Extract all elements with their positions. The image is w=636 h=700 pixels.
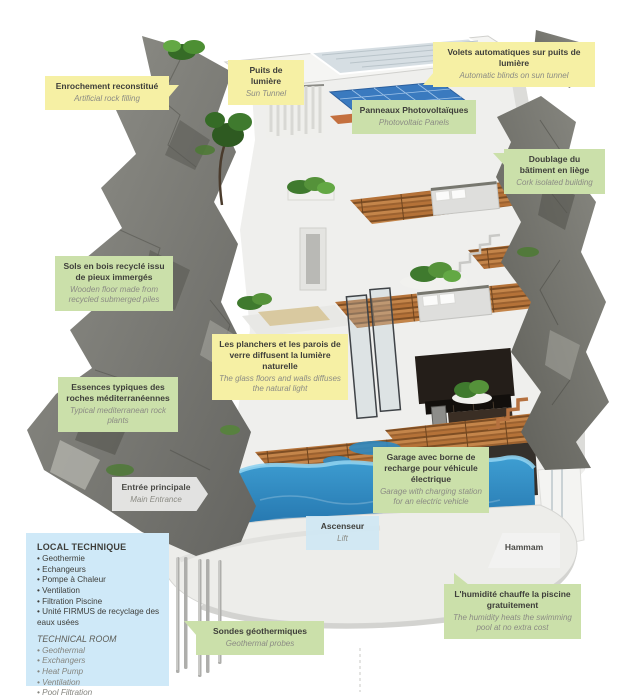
label-en-text: Lift [312, 534, 373, 544]
label-geothermal-probes: Sondes géothermiques Geothermal probes [196, 621, 324, 655]
list-item: Exchangers [37, 656, 164, 667]
label-lift: Ascenseur Lift [306, 516, 379, 550]
label-en-text: Photovoltaic Panels [358, 118, 470, 128]
label-photovoltaic-panels: Panneaux Photovoltaïques Photovoltaic Pa… [352, 100, 476, 134]
label-en-text: Automatic blinds on sun tunnel [439, 71, 589, 81]
list-item: Geothermal [37, 646, 164, 657]
label-en-text: The humidity heats the swimming pool at … [450, 613, 575, 633]
technical-room-title-fr: LOCAL TECHNIQUE [37, 542, 164, 552]
label-fr-text: L'humidité chauffe la piscine gratuiteme… [450, 589, 575, 611]
list-item: Unité FIRMUS de recyclage des eaux usées [37, 607, 164, 628]
label-mediterranean-rock-plants: Essences typiques des roches méditerrané… [58, 377, 178, 432]
label-en-text: Typical mediterranean rock plants [64, 406, 172, 426]
label-fr-text: Sols en bois recyclé issu de pieux immer… [61, 261, 167, 283]
label-fr-text: Ascenseur [312, 521, 373, 532]
list-item: Filtration Piscine [37, 597, 164, 608]
label-en-text: Geothermal probes [202, 639, 318, 649]
label-cork-isolated-building: Doublage du bâtiment en liège Cork isola… [504, 149, 605, 194]
technical-room-title-en: TECHNICAL ROOM [37, 634, 164, 644]
label-fr-text: Essences typiques des roches méditerrané… [64, 382, 172, 404]
technical-room-list-fr: Geothermie Echangeurs Pompe à Chaleur Ve… [37, 554, 164, 629]
list-item: Pool Filtration [37, 688, 164, 699]
technical-room-panel: LOCAL TECHNIQUE Geothermie Echangeurs Po… [26, 533, 169, 686]
label-en-text: Wooden floor made from recycled submerge… [61, 285, 167, 305]
label-fr-text: Puits de lumière [234, 65, 298, 87]
infographic-canvas: Enrochement reconstitué Artificial rock … [0, 0, 636, 700]
label-en-text: Artificial rock filling [51, 94, 163, 104]
label-fr-text: Volets automatiques sur puits de lumière [439, 47, 589, 69]
technical-room-list-en: Geothermal Exchangers Heat Pump Ventilat… [37, 646, 164, 700]
label-fr-text: Entrée principale [118, 482, 194, 493]
label-glass-floors-walls: Les planchers et les parois de verre dif… [212, 334, 348, 400]
label-en-text: Sun Tunnel [234, 89, 298, 99]
label-fr-text: Enrochement reconstitué [51, 81, 163, 92]
list-item: Ventilation [37, 586, 164, 597]
list-item: Geothermie [37, 554, 164, 565]
label-humidity-heats-pool: L'humidité chauffe la piscine gratuiteme… [444, 584, 581, 639]
label-recycled-wood-floor: Sols en bois recyclé issu de pieux immer… [55, 256, 173, 311]
list-item: Pompe à Chaleur [37, 575, 164, 586]
label-fr-text: Les planchers et les parois de verre dif… [218, 339, 342, 372]
label-en-text: Garage with charging station for an elec… [379, 487, 483, 507]
list-item: Ventilation [37, 678, 164, 689]
label-automatic-blinds: Volets automatiques sur puits de lumière… [433, 42, 595, 87]
label-en-text: Main Entrance [118, 495, 194, 505]
label-fr-text: Hammam [494, 542, 554, 553]
label-en-text: Cork isolated building [510, 178, 599, 188]
label-artificial-rock-filling: Enrochement reconstitué Artificial rock … [45, 76, 169, 110]
list-item: Heat Pump [37, 667, 164, 678]
label-sun-tunnel: Puits de lumière Sun Tunnel [228, 60, 304, 105]
label-en-text: The glass floors and walls diffuses the … [218, 374, 342, 394]
label-fr-text: Panneaux Photovoltaïques [358, 105, 470, 116]
label-fr-text: Sondes géothermiques [202, 626, 318, 637]
label-fr-text: Garage avec borne de recharge pour véhic… [379, 452, 483, 485]
label-garage-charging-station: Garage avec borne de recharge pour véhic… [373, 447, 489, 513]
label-main-entrance: Entrée principale Main Entrance [112, 477, 208, 511]
list-item: Echangeurs [37, 565, 164, 576]
label-fr-text: Doublage du bâtiment en liège [510, 154, 599, 176]
